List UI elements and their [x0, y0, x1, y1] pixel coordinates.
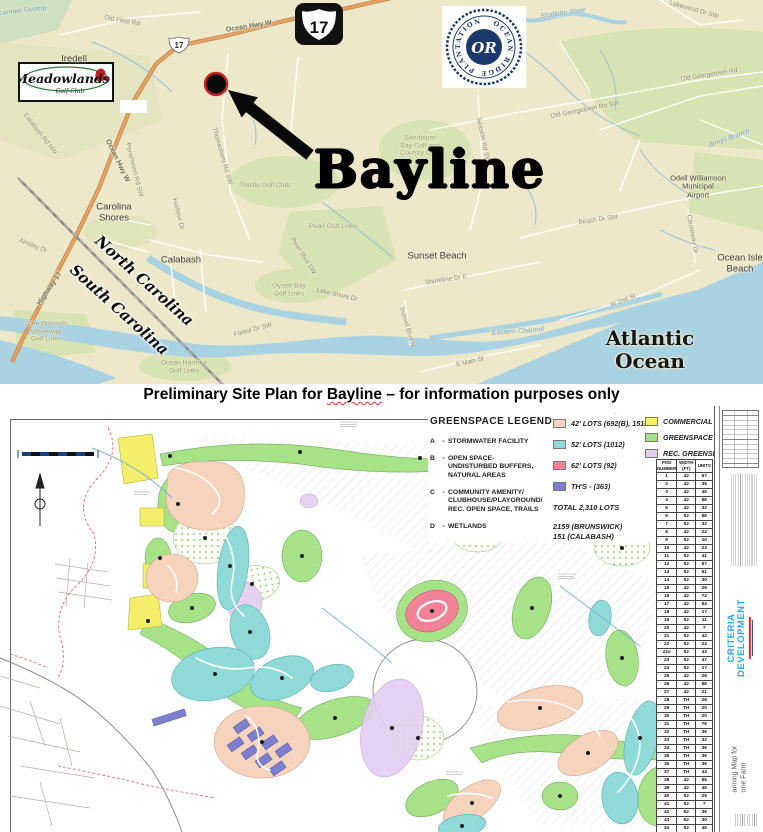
- map-label: Iredell: [61, 55, 87, 66]
- sheet-title: anning Map for one Farm: [715, 726, 763, 812]
- pod-table-row: 154226: [657, 585, 713, 593]
- pod-table-row: 33TH32: [657, 737, 713, 745]
- pod-table-row: 125257: [657, 561, 713, 569]
- pod-table-row: 32TH36: [657, 729, 713, 737]
- pod-table-row: 264256: [657, 681, 713, 689]
- pod-table-row: 235247: [657, 657, 713, 665]
- pod-table-row: 254228: [657, 673, 713, 681]
- legend-total: 151 (CALABASH): [553, 532, 663, 542]
- revision-grid: [722, 410, 759, 468]
- pod-table-row: 22a5243: [657, 649, 713, 657]
- map-label: Highway 17: [36, 271, 64, 307]
- sheet-meta-block: [735, 814, 757, 826]
- pod-table-row: 245217: [657, 665, 713, 673]
- pod-table-row: 75232: [657, 521, 713, 529]
- pod-table-row: 135261: [657, 569, 713, 577]
- legend-swatch: TH'S - (363): [553, 481, 661, 492]
- pod-table-row: 29TH20: [657, 705, 713, 713]
- pod-table-header: WIDTH (FT): [677, 460, 696, 473]
- map-label: Shallotte River: [540, 7, 586, 21]
- pod-table-row: 20427: [657, 625, 713, 633]
- pod-table-row: 34246: [657, 489, 713, 497]
- sheet-title-line1: anning Map for: [730, 746, 739, 793]
- pod-table: POD NUMBERWIDTH (FT)UNITS142672423534246…: [656, 459, 713, 832]
- pod-table-row: 104223: [657, 545, 713, 553]
- map-label: Ocean Hwy W: [226, 20, 273, 35]
- sheet-title-line2: one Farm: [739, 746, 748, 793]
- map-label: South Carolina: [66, 261, 171, 358]
- pod-table-row: 84222: [657, 529, 713, 537]
- pod-table-row: 36TH36: [657, 761, 713, 769]
- map-label: Thomasboro Rd SW: [210, 127, 233, 186]
- caption-post: – for information purposes only: [382, 386, 620, 403]
- pod-table-row: 37TH44: [657, 769, 713, 777]
- pod-table-row: 426236: [657, 809, 713, 817]
- map-label: Carolina Shores: [96, 202, 131, 223]
- pod-table-row: 215242: [657, 633, 713, 641]
- title-block: CRITERIA DEVELOPMENT anning Map for one …: [714, 406, 763, 832]
- bayline-title: Bayline: [314, 140, 546, 201]
- slide: 17 17 Meadowlands Golf Club: [0, 0, 763, 832]
- map-label: Waccamaw Swamp: [0, 5, 47, 19]
- pod-table-row: 115241: [657, 553, 713, 561]
- pod-table-row: 164272: [657, 593, 713, 601]
- firm-address-block: [748, 599, 752, 677]
- pod-table-row: 184217: [657, 609, 713, 617]
- pod-table-row: 54232: [657, 505, 713, 513]
- map-label: W 2nd St: [609, 293, 637, 309]
- map-label: E Main St: [455, 355, 484, 368]
- pod-table-header: UNITS: [696, 460, 713, 473]
- pod-table-row: 95210: [657, 537, 713, 545]
- caption-bar: Preliminary Site Plan for Bayline – for …: [0, 384, 763, 406]
- map-label: Shoreline Dr E: [425, 273, 468, 287]
- map-label: Beach Dr SW: [578, 214, 618, 227]
- map-label: Persimmon Rd SW: [124, 142, 144, 197]
- map-label: Harbour Dr: [171, 198, 186, 231]
- pod-table-row: 174254: [657, 601, 713, 609]
- pod-table-row: 225224: [657, 641, 713, 649]
- pod-table-row: 65256: [657, 513, 713, 521]
- pod-table-row: 41527: [657, 801, 713, 809]
- pod-table-row: 34TH36: [657, 745, 713, 753]
- map-label: Ocean Harbour Golf Links: [161, 359, 207, 374]
- map-label: Sunset Beach: [407, 252, 466, 263]
- pod-table-row: 28TH28: [657, 697, 713, 705]
- pod-table-header: POD NUMBER: [657, 460, 677, 473]
- map-label: Old Field Rd: [104, 14, 141, 27]
- pod-table-row: 14267: [657, 473, 713, 481]
- map-label: Jinnys Branch: [707, 128, 751, 150]
- map-label: Pearl Golf Links: [309, 223, 357, 231]
- map-label: Calabash Rd NW: [22, 112, 59, 156]
- landuse-swatches: COMMERCIALGREENSPACEREC. GREENSPACE: [645, 416, 721, 464]
- pod-table-row: 195211: [657, 617, 713, 625]
- map-label: Causeway Dr: [685, 214, 699, 254]
- pod-table-row: 445246: [657, 825, 713, 832]
- legend-total: 2159 (BRUNSWICK): [553, 522, 663, 532]
- map-label: Sunset Blvd N: [398, 306, 416, 348]
- legend-swatch: REC. GREENSPACE: [645, 448, 721, 458]
- map-label: Old Georgetown Rd: [680, 67, 738, 83]
- pod-table-row: 24235: [657, 481, 713, 489]
- map-label: Lakewood Dr SW: [669, 0, 720, 20]
- pod-table-row: 145230: [657, 577, 713, 585]
- map-label: North Carolina: [91, 233, 196, 330]
- pod-table-row: 384255: [657, 777, 713, 785]
- caption-pre: Preliminary Site Plan for: [143, 386, 326, 403]
- caption-bayline: Bayline: [327, 386, 382, 403]
- legend-swatch: COMMERCIAL: [645, 416, 721, 426]
- map-label: Lake Shore Dr: [316, 287, 358, 304]
- lot-totals: TOTAL 2,310 LOTS2159 (BRUNSWICK)151 (CAL…: [553, 503, 663, 542]
- pod-table-row: 44256: [657, 497, 713, 505]
- pod-table-row: 436230: [657, 817, 713, 825]
- legend-swatch: GREENSPACE: [645, 432, 721, 442]
- pod-table-row: 394246: [657, 785, 713, 793]
- map-label: Ainsley Dr: [18, 237, 48, 255]
- location-map: 17 17 Meadowlands Golf Club: [0, 0, 763, 385]
- map-label: Oyster Bay Golf Links: [272, 282, 306, 297]
- firm-name-line2: DEVELOPMENT: [736, 599, 746, 677]
- pod-table-row: 274221: [657, 689, 713, 697]
- map-label: Eastern Channel: [492, 326, 545, 337]
- disclaimer-text-block: [731, 474, 757, 566]
- legend-total: TOTAL 2,310 LOTS: [553, 503, 663, 513]
- site-plan: GREENSPACE LEGEND A-STORMWATER FACILITYB…: [0, 406, 763, 832]
- pod-table-row: 35TH36: [657, 753, 713, 761]
- map-label: Calabash: [161, 256, 201, 267]
- map-label: Atlantic Ocean: [606, 327, 695, 373]
- firm-name: CRITERIA DEVELOPMENT: [715, 568, 763, 708]
- map-label: Old Georgetown Rd SW: [550, 100, 620, 120]
- pod-table-row: 31TH78: [657, 721, 713, 729]
- pod-table-row: 30TH20: [657, 713, 713, 721]
- map-label: Odell Williamson Municipal Airport: [670, 174, 726, 199]
- map-label: Glen Dornoch Waterway Golf Links: [25, 321, 67, 344]
- map-label: Ocean Isle Beach: [717, 253, 762, 274]
- pod-table-row: 405225: [657, 793, 713, 801]
- map-label: Forest Dr SW: [233, 321, 273, 338]
- map-label: Pearl Blvd SW: [289, 236, 317, 275]
- map-label: Thistle Golf Club: [240, 182, 290, 190]
